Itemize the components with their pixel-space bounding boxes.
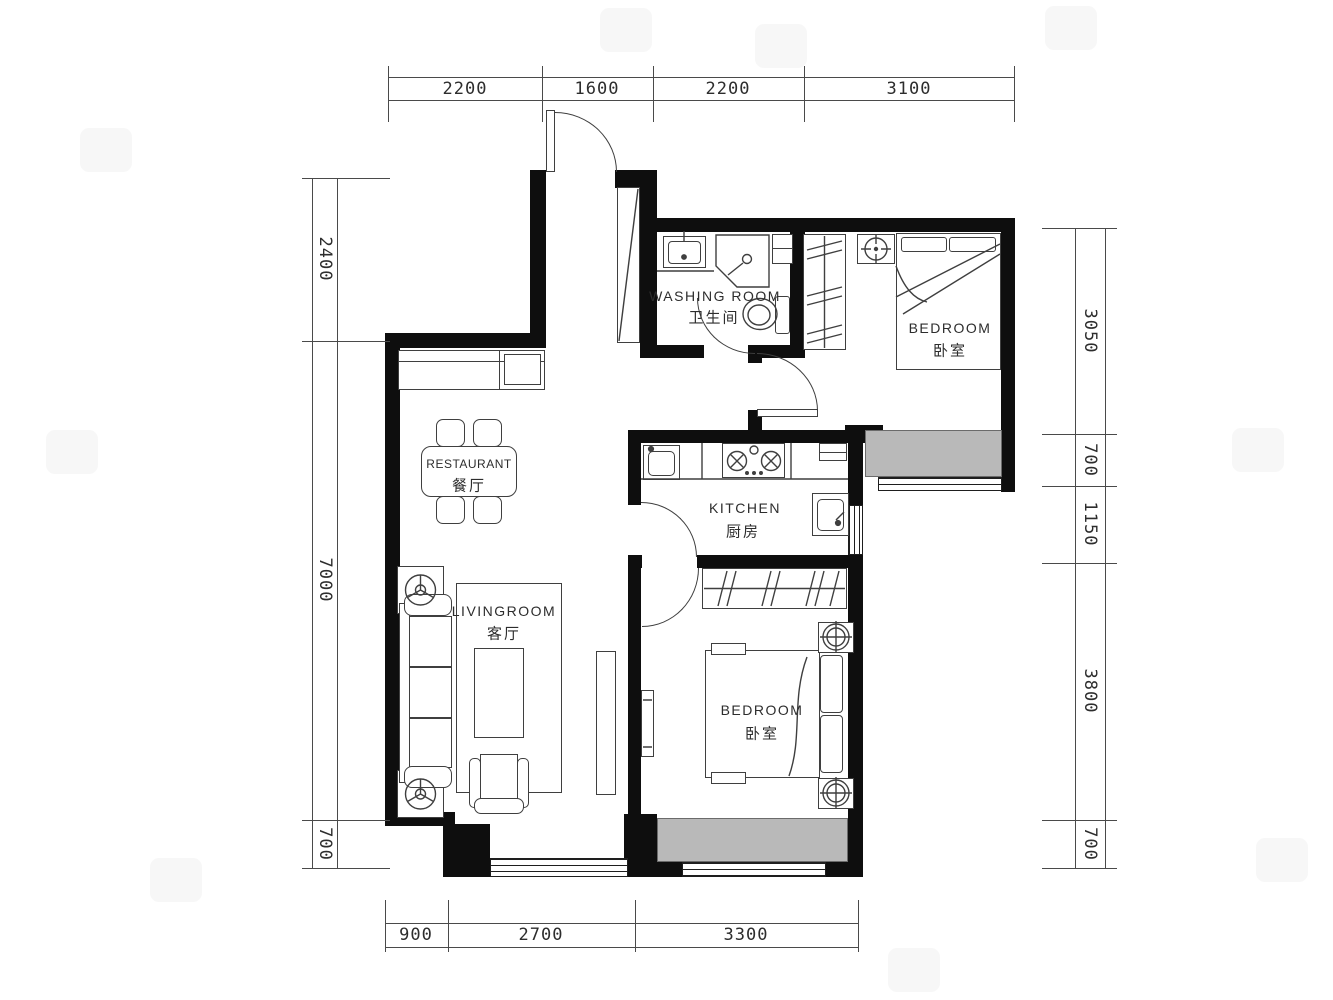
dim-top-3: 2200: [706, 79, 751, 99]
bed-bedroom2-notch: [711, 772, 746, 784]
dim-tick: [385, 900, 386, 952]
wall-bedroom2-top-right: [697, 555, 848, 568]
armchair-back: [474, 798, 524, 814]
dining-chair: [436, 419, 465, 447]
watermark: [888, 948, 940, 992]
dim-tick: [302, 868, 390, 869]
kitchen-sink-right-basin: [817, 499, 844, 531]
entry-console-divider: [499, 350, 500, 390]
dim-right-1: 3050: [1080, 309, 1100, 354]
dim-top-4: 3100: [887, 79, 932, 99]
bathroom-sink-basin: [668, 241, 701, 264]
dim-right-3: 1150: [1080, 502, 1100, 547]
dim-line: [388, 100, 1015, 101]
dim-tick: [1042, 868, 1117, 869]
wardrobe-bedroom1: [803, 234, 846, 350]
watermark: [80, 128, 132, 172]
wall-top: [640, 218, 1015, 232]
flue-shaft: [617, 187, 640, 343]
label-bedroom2-zh: 卧室: [745, 723, 779, 744]
label-bedroom2-en: BEDROOM: [721, 702, 804, 718]
dim-line: [385, 947, 858, 948]
pillow: [820, 655, 843, 713]
dim-tick: [1042, 563, 1117, 564]
window-bedroom2-bay: [682, 862, 826, 877]
label-bedroom1-en: BEDROOM: [909, 320, 992, 336]
wall-living-bedroom2: [628, 555, 641, 817]
wall-entry-jamb: [530, 170, 546, 348]
pillow: [949, 237, 996, 252]
dim-tick: [858, 900, 859, 952]
dim-tick: [1042, 486, 1117, 487]
dim-line: [312, 178, 313, 868]
window-kitchen: [848, 505, 863, 555]
kitchen-door-arc: [641, 502, 697, 557]
kitchen-sink-left-basin: [648, 451, 675, 476]
dim-bottom-2: 2700: [519, 925, 564, 945]
watermark: [755, 24, 807, 68]
dim-tick: [635, 900, 636, 952]
label-washing-room-zh: 卫生间: [688, 307, 739, 328]
sofa-cushion: [409, 616, 452, 667]
wardrobe-bedroom2: [702, 568, 847, 609]
dim-tick: [804, 66, 805, 122]
bay-window-right: [865, 430, 1002, 477]
wall-kitchen-left-upper: [628, 430, 641, 505]
kitchen-counter-box-line: [819, 452, 847, 453]
dim-line: [1105, 228, 1106, 868]
dim-left-1: 2400: [315, 237, 335, 282]
entry-door-arc: [555, 112, 617, 172]
bay-window-bottom: [657, 818, 848, 862]
watermark: [1256, 838, 1308, 882]
entry-door-leaf: [546, 110, 555, 172]
bed-bedroom2-notch: [711, 643, 746, 655]
dim-tick: [653, 66, 654, 122]
wall-step-top-left: [385, 333, 546, 348]
sofa-cushion: [409, 718, 452, 768]
label-washing-room-en: WASHING ROOM: [649, 288, 781, 304]
label-livingroom-en: LIVINGROOM: [452, 603, 556, 619]
label-restaurant-en: RESTAURANT: [426, 457, 511, 471]
dim-right-2: 700: [1080, 443, 1100, 477]
wall-washroom-left: [640, 176, 657, 358]
label-livingroom-zh: 客厅: [487, 623, 521, 644]
sofa-cushion: [409, 667, 452, 718]
dim-line: [385, 923, 858, 924]
wall-bay2-corner-left: [657, 862, 683, 877]
dim-line: [1075, 228, 1076, 868]
tv-cabinet-living: [596, 651, 616, 795]
dim-right-4: 3800: [1080, 669, 1100, 714]
watermark: [600, 8, 652, 52]
dim-tick: [302, 341, 390, 342]
bathroom-cabinet-line: [772, 248, 793, 249]
coffee-table: [474, 648, 524, 738]
entry-console-inner-box: [504, 354, 541, 385]
dim-bottom-1: 900: [399, 925, 433, 945]
watermark: [1045, 6, 1097, 50]
bedroom1-door-arc: [757, 353, 818, 411]
wall-kitchen-top: [628, 430, 858, 443]
bedroom2-door-arc: [642, 568, 699, 627]
dim-right-5: 700: [1080, 827, 1100, 861]
wall-bay2-corner-right: [825, 862, 863, 877]
pillow: [820, 715, 843, 773]
window-bedroom1-bay: [878, 477, 1002, 491]
nightstand-bedroom2: [818, 778, 854, 809]
wall-right-outer: [1001, 218, 1015, 492]
dim-top-2: 1600: [575, 79, 620, 99]
pillow: [901, 237, 947, 252]
dim-tick: [1042, 820, 1117, 821]
dim-left-2: 7000: [315, 558, 335, 603]
floor-plan: WASHING ROOM 卫生间 BEDROOM 卧室 RESTAURANT 餐…: [0, 0, 1333, 1000]
dim-tick: [388, 66, 389, 122]
label-bedroom1-zh: 卧室: [933, 340, 967, 361]
stove: [722, 443, 785, 478]
dim-bottom-3: 3300: [724, 925, 769, 945]
watermark: [150, 858, 202, 902]
label-restaurant-zh: 餐厅: [452, 475, 486, 496]
dim-tick: [448, 900, 449, 952]
sofa-armrest: [404, 766, 452, 788]
wall-washroom-bottom-left: [640, 345, 704, 358]
dim-line: [388, 77, 1015, 78]
dining-chair: [436, 496, 465, 524]
dim-tick: [1042, 434, 1117, 435]
dim-top-1: 2200: [443, 79, 488, 99]
sofa-armrest: [404, 594, 452, 616]
watermark: [1232, 428, 1284, 472]
dim-line: [337, 178, 338, 868]
dim-tick: [542, 66, 543, 122]
watermark: [46, 430, 98, 474]
window-livingroom: [490, 858, 628, 877]
dining-chair: [473, 419, 502, 447]
label-kitchen-zh: 厨房: [726, 521, 760, 542]
bathroom-cabinet: [772, 234, 793, 264]
dining-chair: [473, 496, 502, 524]
dim-tick: [302, 178, 390, 179]
nightstand-bedroom2: [818, 622, 854, 653]
wall-bedroom2-bottom-block: [624, 814, 657, 877]
wall-bottom-left-block: [443, 824, 490, 877]
tv-cabinet-bedroom2: [641, 690, 654, 757]
dim-left-3: 700: [315, 827, 335, 861]
nightstand-bedroom1: [857, 234, 895, 264]
dim-tick: [1042, 228, 1117, 229]
dim-tick: [302, 820, 390, 821]
dim-tick: [1014, 66, 1015, 122]
label-kitchen-en: KITCHEN: [709, 500, 781, 516]
